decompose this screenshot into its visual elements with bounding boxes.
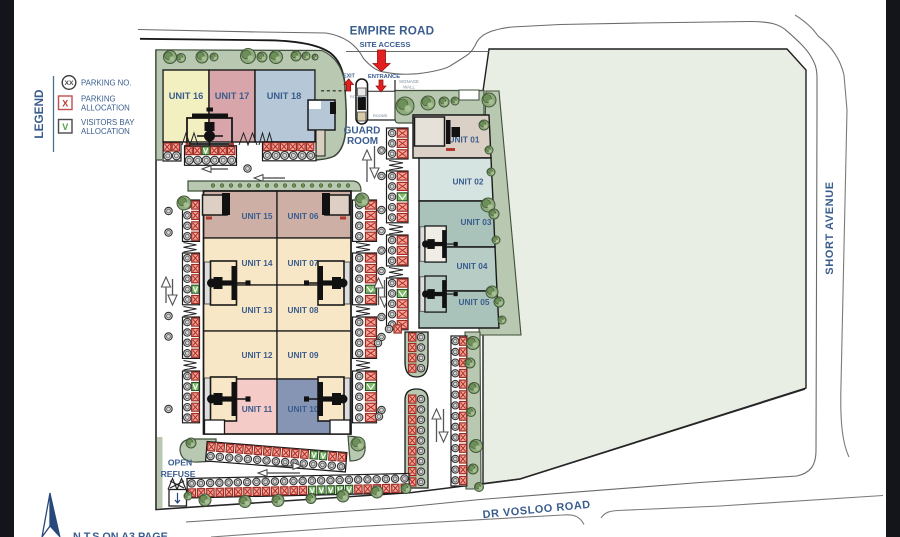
svg-text:ENTRANCE: ENTRANCE: [368, 74, 400, 80]
svg-text:OPEN: OPEN: [168, 458, 192, 468]
svg-text:UNIT 02: UNIT 02: [453, 177, 484, 187]
svg-text:ROOM: ROOM: [350, 95, 362, 99]
svg-text:PARKING: PARKING: [81, 95, 116, 104]
svg-text:XX: XX: [64, 80, 74, 87]
svg-text:SHORT AVENUE: SHORT AVENUE: [824, 181, 836, 274]
svg-text:SITE ACCESS: SITE ACCESS: [360, 40, 411, 49]
svg-text:UNIT 03: UNIT 03: [461, 217, 492, 227]
svg-text:PARKING NO.: PARKING NO.: [81, 79, 132, 88]
svg-text:UNIT 14: UNIT 14: [242, 258, 273, 268]
svg-text:ROOMS: ROOMS: [373, 114, 388, 118]
svg-text:UNIT 05: UNIT 05: [459, 297, 490, 307]
svg-text:WALL: WALL: [403, 85, 415, 90]
svg-text:UNIT 12: UNIT 12: [242, 350, 273, 360]
svg-text:UNIT 06: UNIT 06: [288, 211, 319, 221]
svg-text:UNIT 13: UNIT 13: [242, 305, 273, 315]
svg-text:UNIT 16: UNIT 16: [169, 91, 204, 101]
svg-text:V: V: [62, 122, 68, 132]
svg-text:UNIT 11: UNIT 11: [242, 404, 273, 414]
svg-text:EMPIRE ROAD: EMPIRE ROAD: [350, 24, 435, 37]
svg-text:UNIT 08: UNIT 08: [288, 305, 319, 315]
svg-text:SIGNAGE: SIGNAGE: [399, 79, 419, 84]
svg-text:UNIT 18: UNIT 18: [267, 91, 302, 101]
svg-text:REFUSE: REFUSE: [161, 469, 196, 479]
svg-text:ALLOCATION: ALLOCATION: [81, 127, 130, 136]
svg-text:EXIT: EXIT: [343, 74, 355, 80]
svg-text:GUARD: GUARD: [344, 126, 381, 137]
svg-text:ALLOCATION: ALLOCATION: [81, 104, 130, 113]
svg-text:UNIT 04: UNIT 04: [457, 261, 488, 271]
svg-text:UNIT 15: UNIT 15: [242, 211, 273, 221]
svg-text:ROOM: ROOM: [347, 136, 378, 147]
svg-text:UNIT 10: UNIT 10: [288, 404, 319, 414]
svg-text:UNIT 09: UNIT 09: [288, 350, 319, 360]
svg-text:VISITORS BAY: VISITORS BAY: [81, 118, 135, 127]
svg-text:UNIT 07: UNIT 07: [288, 258, 319, 268]
svg-text:UNIT 17: UNIT 17: [215, 91, 250, 101]
svg-text:LEGEND: LEGEND: [32, 89, 46, 139]
svg-text:X: X: [62, 99, 68, 109]
svg-text:N.T.S ON A3 PAGE: N.T.S ON A3 PAGE: [73, 531, 168, 537]
